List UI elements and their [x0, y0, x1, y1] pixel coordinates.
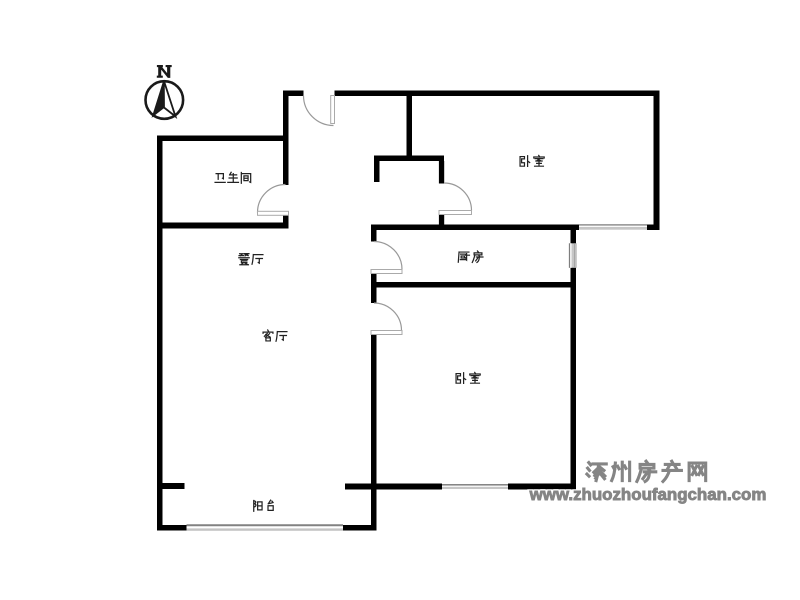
svg-text:www.zhuozhoufangchan.com: www.zhuozhoufangchan.com — [529, 485, 767, 504]
